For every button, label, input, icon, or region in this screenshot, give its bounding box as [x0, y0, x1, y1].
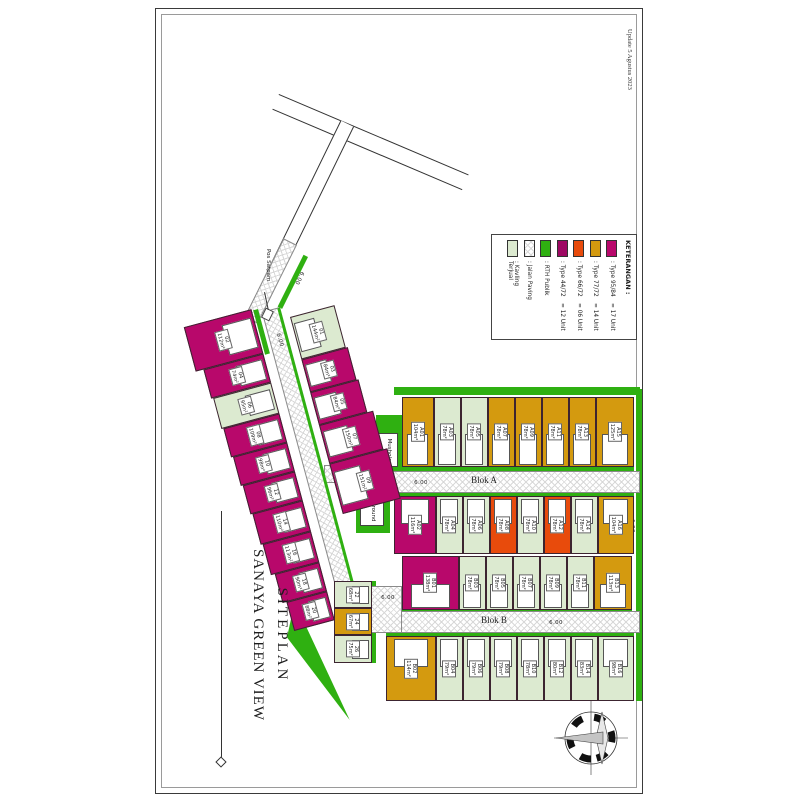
lot-label: A1478m² — [578, 516, 592, 533]
lot-a14: A1478m² — [571, 496, 598, 554]
lot-label: A0378m² — [441, 423, 455, 440]
legend-swatch-rth — [540, 240, 551, 257]
lot-b01: B01138m² — [402, 556, 459, 610]
lot-b05: B0578m² — [486, 556, 513, 610]
lot-b07: B0778m² — [513, 556, 540, 610]
legend-title: KETERANGAN : — [624, 240, 632, 334]
lot-b14: B1483m² — [571, 636, 598, 701]
lot-a16: A16104m² — [598, 496, 634, 554]
lot-26: 2675m² — [334, 635, 372, 663]
lot-label: B0679m² — [470, 660, 484, 677]
legend-swatch-t66 — [573, 240, 584, 257]
legend-label: : Jalan Paving — [526, 261, 532, 303]
green-area — [394, 387, 640, 395]
legend-box: KETERANGAN : : Type 95/84= 17 Unit: Type… — [491, 234, 637, 340]
lot-label: B1178m² — [574, 574, 588, 591]
lot-label: A01104m² — [411, 422, 425, 442]
siteplan-page: Update 5 Agustus 2023 Mushola Playground… — [0, 0, 800, 800]
legend-count: = 12 Unit — [559, 303, 565, 331]
lot-label: B01138m² — [424, 573, 438, 593]
legend-swatch-paving — [524, 240, 535, 257]
lot-label: A0878m² — [497, 516, 511, 533]
lot-b08: B0879m² — [490, 636, 517, 701]
lot-label: B0778m² — [520, 574, 534, 591]
lot-b11: B1178m² — [567, 556, 594, 610]
legend-item: : Type 66/72= 06 Unit — [571, 240, 588, 334]
lot-b09: B0978m² — [540, 556, 567, 610]
row-south-strip: 2268m²2467m²2675m² — [334, 581, 372, 663]
lot-label: B0578m² — [493, 574, 507, 591]
row-blok-b-north: B13113m²B1178m²B0978m²B0778m²B0578m²B037… — [402, 556, 632, 610]
lot-a06: A0678m² — [463, 496, 490, 554]
lot-label: B1280m² — [551, 660, 565, 677]
legend-count: = 06 Unit — [576, 303, 582, 331]
lot-b02: B02114m² — [386, 636, 436, 701]
lot-a15: A15125m² — [596, 397, 634, 467]
lot-b04: B0479m² — [436, 636, 463, 701]
compass-icon — [552, 699, 630, 777]
legend-item: : Jalan Paving — [521, 240, 538, 334]
legend-label: : Type 66/72 — [576, 261, 582, 303]
lot-label: A02116m² — [408, 515, 422, 535]
lot-label: B0479m² — [443, 660, 457, 677]
road-dimension: 6.00 — [275, 333, 284, 348]
street-blok-a: Blok A 6.00 — [388, 471, 640, 493]
title-rule — [221, 511, 222, 761]
public-road — [272, 94, 468, 190]
lot-a02: A02116m² — [394, 496, 436, 554]
title-rule-diamond — [216, 756, 227, 767]
legend-count: = 14 Unit — [592, 303, 598, 331]
legend-item: : Kavling Terjual — [505, 240, 522, 334]
lot-label: A0978m² — [522, 423, 536, 440]
title-line1: SITEPLAN — [273, 509, 290, 761]
green-area — [636, 389, 642, 701]
legend-label: : Type 77/72 — [592, 261, 598, 303]
legend-item: : Type 77/72= 14 Unit — [587, 240, 604, 334]
legend-label: : Type 95/84 — [609, 261, 615, 303]
legend-label: : Type 44/72 — [559, 261, 565, 303]
street-blok-b: Blok B 6.00 — [386, 611, 640, 633]
road-dimension: 6.00 — [414, 480, 428, 486]
lot-label: 2268m² — [346, 586, 360, 603]
legend-count: = 17 Unit — [609, 303, 615, 331]
legend-swatch-sold — [507, 240, 518, 257]
lot-a09: A0978m² — [515, 397, 542, 467]
lot-label: A0578m² — [468, 423, 482, 440]
row-blok-b-south: B1698m²B1483m²B1280m²B1078m²B0879m²B0679… — [386, 636, 634, 701]
legend-swatch-t77 — [590, 240, 601, 257]
lot-b03: B0378m² — [459, 556, 486, 610]
legend-swatch-t44 — [557, 240, 568, 257]
lot-label: A1378m² — [576, 423, 590, 440]
lot-b06: B0679m² — [463, 636, 490, 701]
lot-label: B0378m² — [466, 574, 480, 591]
lot-a01: A01104m² — [402, 397, 434, 467]
legend-label: : Kavling Terjual — [507, 261, 519, 303]
title-line2: SANAYA GREEN VIEW — [249, 509, 266, 761]
lot-a13: A1378m² — [569, 397, 596, 467]
lot-label: A15125m² — [608, 422, 622, 442]
row-blok-a-north: A15125m²A1378m²A1178m²A0978m²A0778m²A057… — [402, 397, 634, 467]
title-block: SITEPLAN SANAYA GREEN VIEW — [249, 509, 290, 761]
legend-swatch-t95 — [606, 240, 617, 257]
lot-label: B13113m² — [606, 573, 620, 593]
lot-b10: B1078m² — [517, 636, 544, 701]
lot-b16: B1698m² — [598, 636, 634, 701]
street-blok-b-label: Blok B — [481, 615, 507, 625]
legend-label: : RTH Publik — [543, 261, 549, 303]
lot-a04: A0478m² — [436, 496, 463, 554]
lot-a10: A1078m² — [517, 496, 544, 554]
legend-item: : RTH Publik — [538, 240, 555, 334]
lot-a03: A0378m² — [434, 397, 461, 467]
lot-label: A0478m² — [443, 516, 457, 533]
legend-rows: : Type 95/84= 17 Unit: Type 77/72= 14 Un… — [505, 240, 621, 334]
update-note: Update 5 Agustus 2023 — [626, 29, 633, 90]
lot-22: 2268m² — [334, 581, 372, 608]
lot-b13: B13113m² — [594, 556, 632, 610]
lot-label: B0978m² — [547, 574, 561, 591]
siteplan-sheet: Update 5 Agustus 2023 Mushola Playground… — [155, 8, 643, 794]
lot-label: 0584m² — [330, 392, 348, 412]
lot-label: B1698m² — [609, 660, 623, 677]
street-blok-a-label: Blok A — [471, 475, 497, 485]
lot-label: A1078m² — [524, 516, 538, 533]
pos-satpam-label: Pos Satpam — [265, 249, 271, 281]
lot-a12: A1278m² — [544, 496, 571, 554]
lot-b12: B1280m² — [544, 636, 571, 701]
lot-a08: A0878m² — [490, 496, 517, 554]
lot-label: A1178m² — [549, 423, 563, 440]
lot-label: 0384m² — [320, 360, 338, 380]
lot-label: B1078m² — [524, 660, 538, 677]
lot-a07: A0778m² — [488, 397, 515, 467]
lot-label: A16104m² — [609, 515, 623, 535]
road-dimension: 6.00 — [549, 620, 563, 626]
lot-label: A1278m² — [551, 516, 565, 533]
lot-label: B0879m² — [497, 660, 511, 677]
lot-label: A0678m² — [470, 516, 484, 533]
lot-a11: A1178m² — [542, 397, 569, 467]
lot-label: B02114m² — [404, 658, 418, 678]
legend-item: : Type 44/72= 12 Unit — [554, 240, 571, 334]
lot-label: B1483m² — [578, 660, 592, 677]
road-dimension: 6.00 — [381, 595, 395, 601]
legend-item: : Type 95/84= 17 Unit — [604, 240, 621, 334]
street-corner: 6.00 — [370, 586, 402, 633]
lot-label: 2467m² — [346, 613, 360, 630]
lot-label: 2675m² — [346, 640, 360, 657]
row-blok-a-south: A16104m²A1478m²A1278m²A1078m²A0878m²A067… — [394, 496, 634, 554]
lot-a05: A0578m² — [461, 397, 488, 467]
lot-label: A0778m² — [495, 423, 509, 440]
lot-24: 2467m² — [334, 608, 372, 635]
